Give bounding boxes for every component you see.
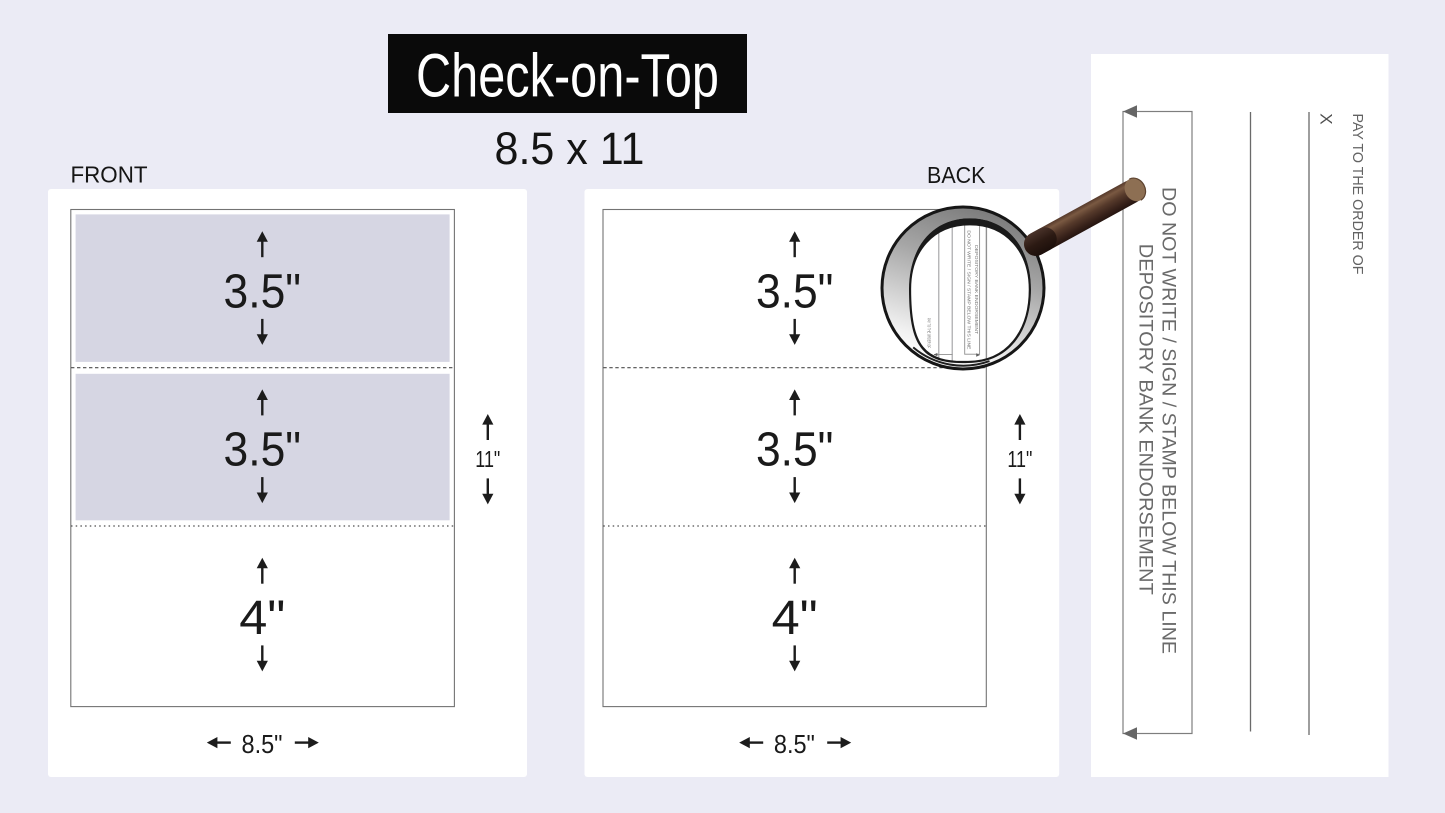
svg-text:DEPOSITORY BANK ENDORSEMENT: DEPOSITORY BANK ENDORSEMENT bbox=[974, 245, 979, 334]
svg-text:8.5 x 11: 8.5 x 11 bbox=[495, 123, 645, 174]
svg-text:3.5": 3.5" bbox=[224, 423, 302, 477]
svg-text:4": 4" bbox=[239, 591, 285, 645]
svg-text:PAY TO THE ORDER OF: PAY TO THE ORDER OF bbox=[1349, 114, 1366, 275]
svg-text:DO NOT WRITE / SIGN / STAMP BE: DO NOT WRITE / SIGN / STAMP BELOW THIS L… bbox=[967, 230, 972, 349]
svg-text:11": 11" bbox=[1007, 446, 1032, 472]
svg-text:3.5": 3.5" bbox=[224, 264, 302, 318]
svg-text:8.5": 8.5" bbox=[242, 731, 283, 759]
svg-text:FRONT: FRONT bbox=[71, 162, 148, 188]
svg-text:4": 4" bbox=[772, 591, 818, 645]
svg-text:3.5": 3.5" bbox=[756, 423, 834, 477]
svg-text:3.5": 3.5" bbox=[756, 264, 834, 318]
svg-text:8.5": 8.5" bbox=[774, 731, 815, 759]
svg-text:DO NOT WRITE / SIGN / STAMP BE: DO NOT WRITE / SIGN / STAMP BELOW THIS L… bbox=[1158, 187, 1180, 654]
svg-text:DEPOSITORY BANK ENDORSEMENT: DEPOSITORY BANK ENDORSEMENT bbox=[1134, 244, 1156, 595]
svg-text:BACK: BACK bbox=[927, 162, 986, 188]
svg-text:Check-on-Top: Check-on-Top bbox=[416, 42, 719, 111]
svg-text:11": 11" bbox=[475, 446, 500, 472]
svg-text:PAY TO THE ORDER OF: PAY TO THE ORDER OF bbox=[927, 318, 932, 348]
svg-text:X: X bbox=[1317, 113, 1336, 124]
